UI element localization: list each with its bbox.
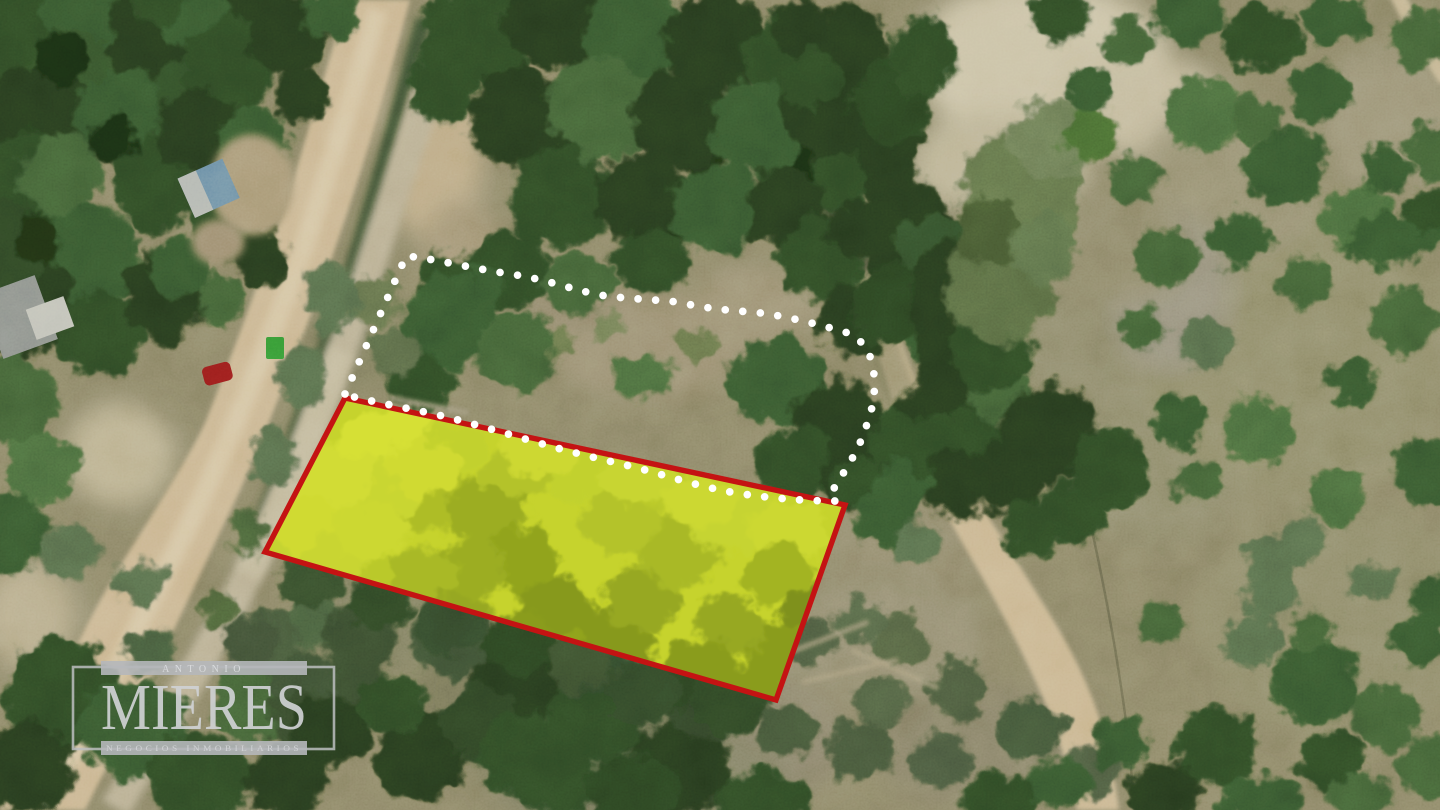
svg-text:MIERES: MIERES (101, 671, 307, 744)
svg-text:NEGOCIOS INMOBILIARIOS: NEGOCIOS INMOBILIARIOS (106, 744, 302, 753)
